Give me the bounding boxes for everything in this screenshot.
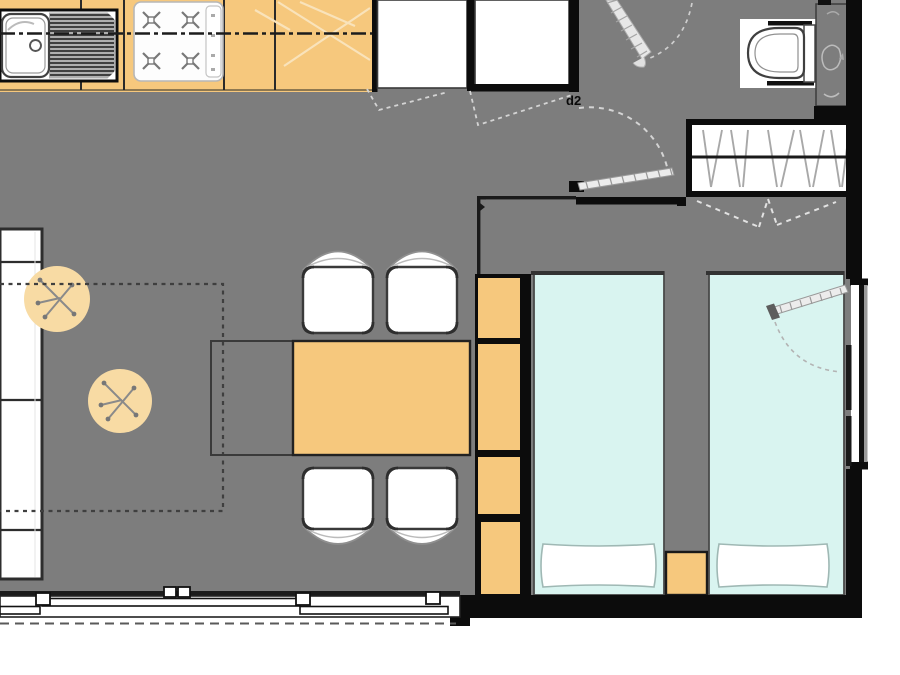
svg-text:d2: d2 [566, 93, 581, 108]
